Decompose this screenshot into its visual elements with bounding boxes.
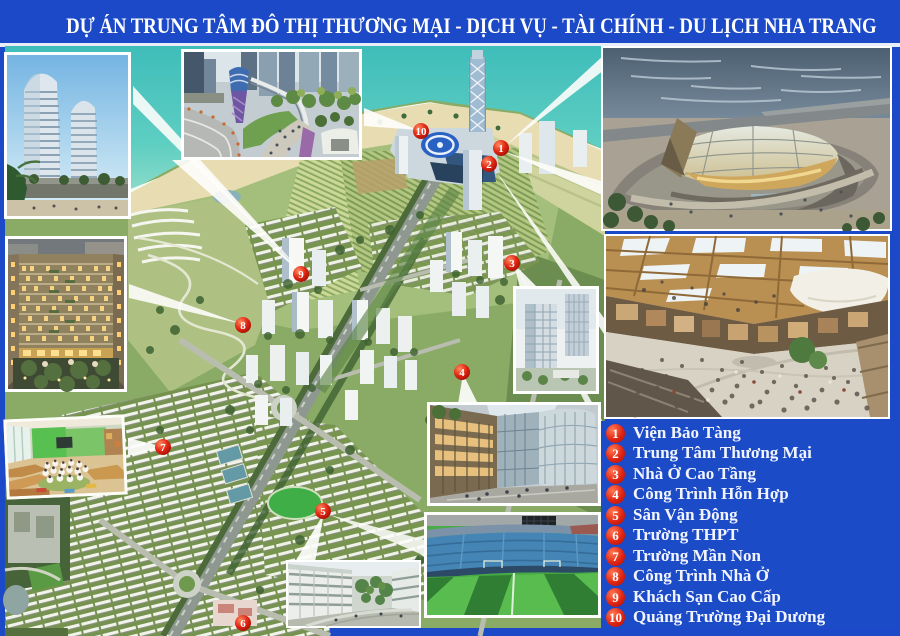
svg-text:9: 9 xyxy=(298,269,304,281)
svg-text:1: 1 xyxy=(498,143,504,155)
svg-text:10: 10 xyxy=(416,126,428,138)
svg-text:2: 2 xyxy=(486,159,492,171)
svg-text:3: 3 xyxy=(509,258,515,270)
svg-text:6: 6 xyxy=(240,618,246,630)
svg-text:8: 8 xyxy=(240,320,246,332)
svg-text:5: 5 xyxy=(320,506,326,518)
svg-text:4: 4 xyxy=(459,367,465,379)
svg-text:7: 7 xyxy=(160,442,166,454)
